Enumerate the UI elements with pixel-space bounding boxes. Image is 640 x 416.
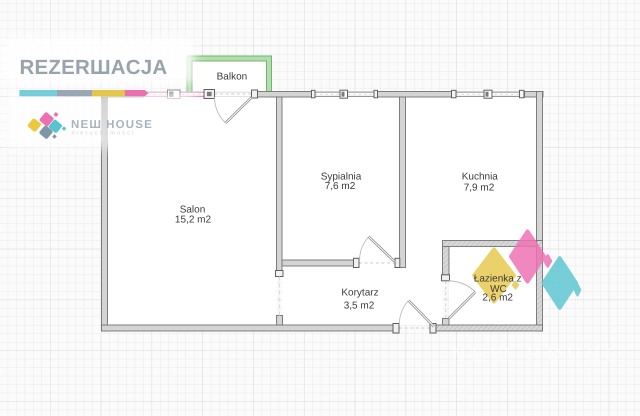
- svg-text:NEШ HOUSE: NEШ HOUSE: [452, 345, 624, 366]
- svg-text:7,6 m2: 7,6 m2: [325, 181, 356, 192]
- svg-text:2,6 m2: 2,6 m2: [482, 293, 513, 304]
- svg-text:nieruchomości: nieruchomości: [72, 130, 136, 137]
- svg-text:Kuchnia: Kuchnia: [462, 172, 499, 183]
- svg-text:Korytarz: Korytarz: [341, 288, 378, 299]
- svg-text:Balkon: Balkon: [217, 72, 248, 83]
- svg-text:Łazienka z: Łazienka z: [474, 274, 522, 285]
- svg-text:3,5 m2: 3,5 m2: [344, 301, 375, 312]
- svg-text:REZERШACJA: REZERШACJA: [20, 56, 168, 79]
- svg-text:7,9 m2: 7,9 m2: [464, 183, 495, 194]
- svg-text:15,2 m2: 15,2 m2: [175, 215, 212, 226]
- svg-text:NEШHOUSE: NEШHOUSE: [71, 119, 153, 131]
